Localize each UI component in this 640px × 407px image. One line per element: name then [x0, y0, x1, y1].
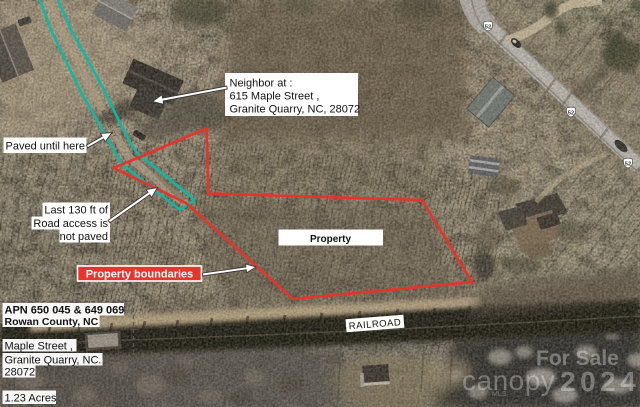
svg-text:1.23 Acres: 1.23 Acres — [5, 393, 57, 405]
svg-text:Property boundaries: Property boundaries — [86, 269, 194, 281]
svg-text:52: 52 — [568, 110, 574, 116]
svg-text:52: 52 — [625, 161, 631, 167]
svg-text:Rowan County, NC: Rowan County, NC — [5, 316, 99, 328]
svg-text:Last 130 ft of: Last 130 ft of — [44, 205, 109, 217]
svg-text:Paved until here: Paved until here — [6, 141, 86, 153]
svg-text:not paved: not paved — [60, 231, 108, 243]
svg-text:Maple Street ,: Maple Street , — [5, 341, 73, 353]
svg-text:2024: 2024 — [560, 366, 640, 397]
svg-text:28072: 28072 — [5, 367, 36, 379]
svg-text:Neighbor at :: Neighbor at : — [230, 78, 293, 90]
svg-text:Granite Quarry, NC, 28072: Granite Quarry, NC, 28072 — [230, 104, 361, 116]
svg-text:canopy: canopy — [462, 365, 555, 396]
svg-text:Property: Property — [310, 234, 352, 245]
svg-text:615 Maple Street ,: 615 Maple Street , — [230, 91, 320, 103]
svg-text:MLS: MLS — [492, 391, 507, 398]
svg-text:Granite Quarry, NC.: Granite Quarry, NC. — [5, 355, 102, 367]
svg-text:Road access is: Road access is — [33, 218, 108, 230]
svg-text:APN 650 045 & 649 069: APN 650 045 & 649 069 — [5, 305, 125, 317]
svg-text:52: 52 — [485, 24, 491, 30]
